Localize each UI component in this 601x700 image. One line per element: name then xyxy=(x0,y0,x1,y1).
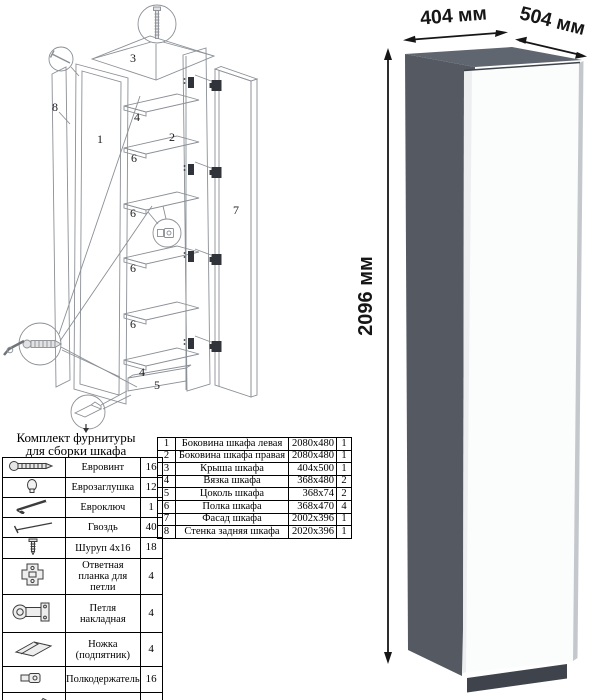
part-label-6a: 6 xyxy=(131,151,137,165)
table-row: 7 Фасад шкафа 2002x396 1 xyxy=(158,513,352,526)
depth-dimension-label: 504 мм xyxy=(517,2,587,40)
hardware-qty: 1 xyxy=(140,693,162,700)
hardware-kit-title: Комплект фурнитуры для сборки шкафа xyxy=(0,431,152,457)
part-name: Вязка шкафа xyxy=(176,475,289,488)
product-render: 2096 мм 404 мм 504 мм xyxy=(350,0,601,700)
assembly-leader-lines xyxy=(59,96,152,387)
part-label-4b: 4 xyxy=(139,365,145,379)
part-size: 2020x396 xyxy=(289,526,337,539)
part-num: 4 xyxy=(158,475,176,488)
hardware-row: Ножка (подпятник) 4 xyxy=(3,633,163,667)
nail-detail-circle xyxy=(49,47,79,76)
part-label-6c: 6 xyxy=(130,261,136,275)
hardware-name: Петля накладная xyxy=(66,595,141,633)
hardware-qty: 18 xyxy=(140,538,162,559)
hinge-plate-icon xyxy=(6,559,62,591)
hex-key-icon xyxy=(6,498,62,514)
foot-detail-circle xyxy=(71,391,131,433)
table-row: 3 Крыша шкафа 404x500 1 xyxy=(158,463,352,476)
hardware-name: Толкатель (пуш) xyxy=(66,693,141,700)
width-dimension-label: 404 мм xyxy=(419,2,487,29)
hardware-row: Евроключ 1 xyxy=(3,498,163,518)
part-label-8: 8 xyxy=(52,100,58,114)
shelf-pin-detail-circle xyxy=(148,206,181,247)
hardware-row: Толкатель (пуш) 1 xyxy=(3,693,163,700)
part-label-3: 3 xyxy=(130,51,136,65)
part-label-7: 7 xyxy=(233,203,239,217)
part-label-6b: 6 xyxy=(130,206,136,220)
hardware-name: Ножка (подпятник) xyxy=(66,633,141,667)
part-num: 1 xyxy=(158,438,176,451)
hinge-icon xyxy=(6,595,62,629)
part-label-5: 5 xyxy=(154,378,160,392)
hardware-qty: 4 xyxy=(140,633,162,667)
part-size: 368x470 xyxy=(289,500,337,513)
hardware-qty: 4 xyxy=(140,559,162,595)
exploded-diagram: 1 2 3 4 4 5 6 6 6 6 7 8 xyxy=(0,0,350,445)
part-name: Стенка задняя шкафа xyxy=(176,526,289,539)
hinge-hardware xyxy=(184,77,222,352)
part-num: 8 xyxy=(158,526,176,539)
hardware-name: Евровинт xyxy=(66,458,141,478)
parts-table: 1 Боковина шкафа левая 2080x480 1 2 Боко… xyxy=(157,437,352,539)
hardware-row: Полкодержатель 16 xyxy=(3,667,163,693)
hardware-name: Шуруп 4x16 xyxy=(66,538,141,559)
part-name: Полка шкафа xyxy=(176,500,289,513)
part-name: Крыша шкафа xyxy=(176,463,289,476)
table-row: 8 Стенка задняя шкафа 2020x396 1 xyxy=(158,526,352,539)
width-dimension-arrow xyxy=(403,30,508,43)
hardware-name: Гвоздь xyxy=(66,518,141,538)
screw-icon xyxy=(6,538,62,555)
part-num: 7 xyxy=(158,513,176,526)
hardware-name: Ответная планка для петли xyxy=(66,559,141,595)
part-size: 404x500 xyxy=(289,463,337,476)
shelf-pin-icon xyxy=(6,667,62,689)
part-label-2: 2 xyxy=(169,130,175,144)
hardware-kit-title-line2: для сборки шкафа xyxy=(0,444,152,457)
part-name: Боковина шкафа правая xyxy=(176,450,289,463)
part-size: 2080x480 xyxy=(289,438,337,451)
part-num: 3 xyxy=(158,463,176,476)
hardware-qty: 4 xyxy=(140,595,162,633)
hardware-row: Шуруп 4x16 18 xyxy=(3,538,163,559)
foot-icon xyxy=(6,633,62,663)
table-row: 6 Полка шкафа 368x470 4 xyxy=(158,500,352,513)
hardware-qty: 16 xyxy=(140,667,162,693)
euro-cap-icon xyxy=(6,478,62,494)
hardware-kit-table: Евровинт 16 Еврозаглушка 12 Евроключ 1 Г… xyxy=(2,457,163,700)
hardware-row: Петля накладная 4 xyxy=(3,595,163,633)
part-num: 6 xyxy=(158,500,176,513)
part-label-4: 4 xyxy=(134,110,140,124)
part-num: 5 xyxy=(158,488,176,501)
assembly-sheet: 1 2 3 4 4 5 6 6 6 6 7 8 Комплект фурниту… xyxy=(0,0,601,700)
part-size: 2080x480 xyxy=(289,450,337,463)
push-rod-icon xyxy=(6,693,62,700)
hardware-name: Евроключ xyxy=(66,498,141,518)
nail-icon xyxy=(6,518,62,534)
cabinet-door-face xyxy=(463,63,579,673)
height-dimension-label: 2096 мм xyxy=(355,256,377,336)
euro-screw-detail-circle xyxy=(138,5,176,43)
table-row: 4 Вязка шкафа 368x480 2 xyxy=(158,475,352,488)
left-side-panel xyxy=(74,64,128,404)
hardware-row: Ответная планка для петли 4 xyxy=(3,559,163,595)
part-name: Цоколь шкафа xyxy=(176,488,289,501)
part-size: 2002x396 xyxy=(289,513,337,526)
part-name: Фасад шкафа xyxy=(176,513,289,526)
table-row: 5 Цоколь шкафа 368x74 2 xyxy=(158,488,352,501)
confirmat-detail-circle xyxy=(19,323,61,365)
hardware-row: Еврозаглушка 12 xyxy=(3,478,163,498)
part-num: 2 xyxy=(158,450,176,463)
hardware-row: Гвоздь 40 xyxy=(3,518,163,538)
hardware-name: Полкодержатель xyxy=(66,667,141,693)
part-size: 368x74 xyxy=(289,488,337,501)
part-label-1: 1 xyxy=(97,132,103,146)
height-dimension-arrow xyxy=(384,48,392,664)
table-row: 1 Боковина шкафа левая 2080x480 1 xyxy=(158,438,352,451)
hardware-row: Евровинт 16 xyxy=(3,458,163,478)
table-row: 2 Боковина шкафа правая 2080x480 1 xyxy=(158,450,352,463)
part-label-6d: 6 xyxy=(130,317,136,331)
part-size: 368x480 xyxy=(289,475,337,488)
hardware-name: Еврозаглушка xyxy=(66,478,141,498)
euro-screw-icon xyxy=(6,458,62,474)
part-name: Боковина шкафа левая xyxy=(176,438,289,451)
